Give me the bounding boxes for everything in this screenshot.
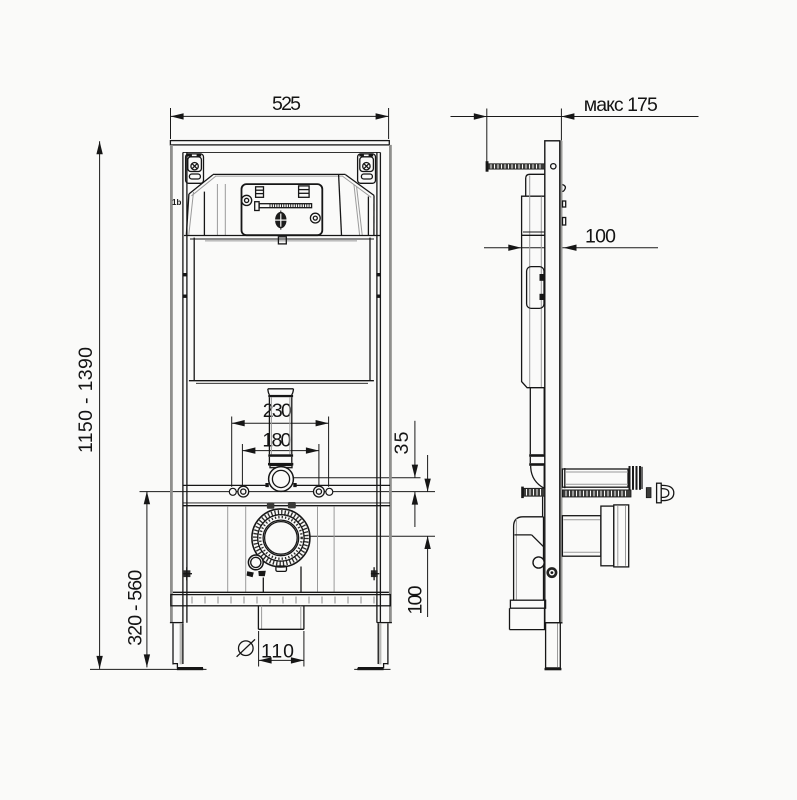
svg-text:35: 35 [391,431,413,454]
svg-text:100: 100 [404,585,426,614]
svg-text:320 - 560: 320 - 560 [124,570,146,646]
svg-text:1150 - 1390: 1150 - 1390 [75,347,97,453]
svg-text:525: 525 [272,93,301,115]
svg-text:100: 100 [585,225,616,247]
svg-text:230: 230 [263,400,292,422]
svg-text:110: 110 [261,641,294,663]
svg-text:макс 175: макс 175 [584,94,658,116]
svg-text:180: 180 [262,429,291,451]
svg-text:1b: 1b [172,198,181,207]
